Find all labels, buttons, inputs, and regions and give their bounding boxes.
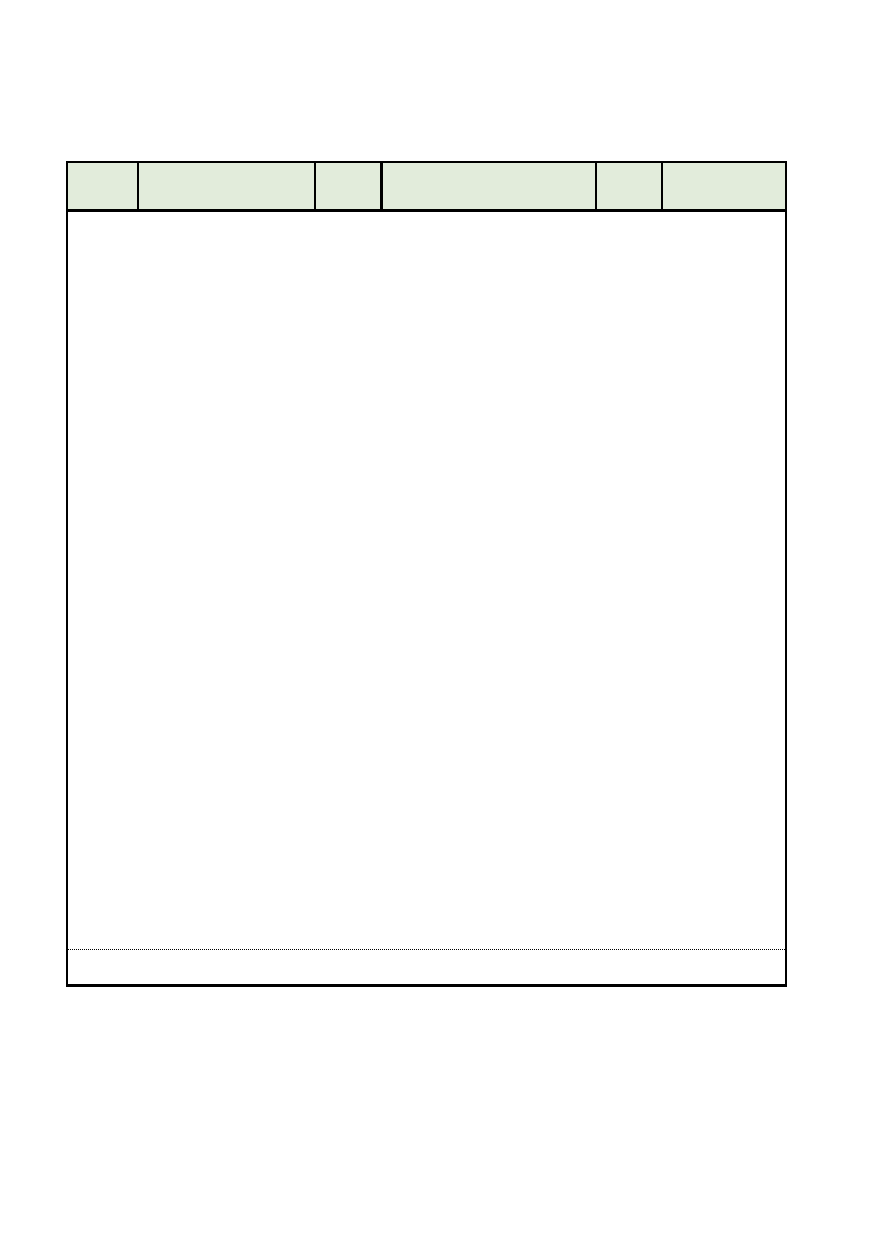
header-cell-5 bbox=[597, 163, 663, 209]
header-cell-3 bbox=[316, 163, 383, 209]
form-table bbox=[66, 161, 787, 987]
header-cell-2 bbox=[139, 163, 316, 209]
header-cell-1 bbox=[68, 163, 139, 209]
header-cell-6 bbox=[663, 163, 785, 209]
footer-strip bbox=[68, 950, 785, 984]
table-header-row bbox=[68, 163, 785, 212]
header-cell-4 bbox=[383, 163, 597, 209]
content-area bbox=[68, 212, 785, 949]
